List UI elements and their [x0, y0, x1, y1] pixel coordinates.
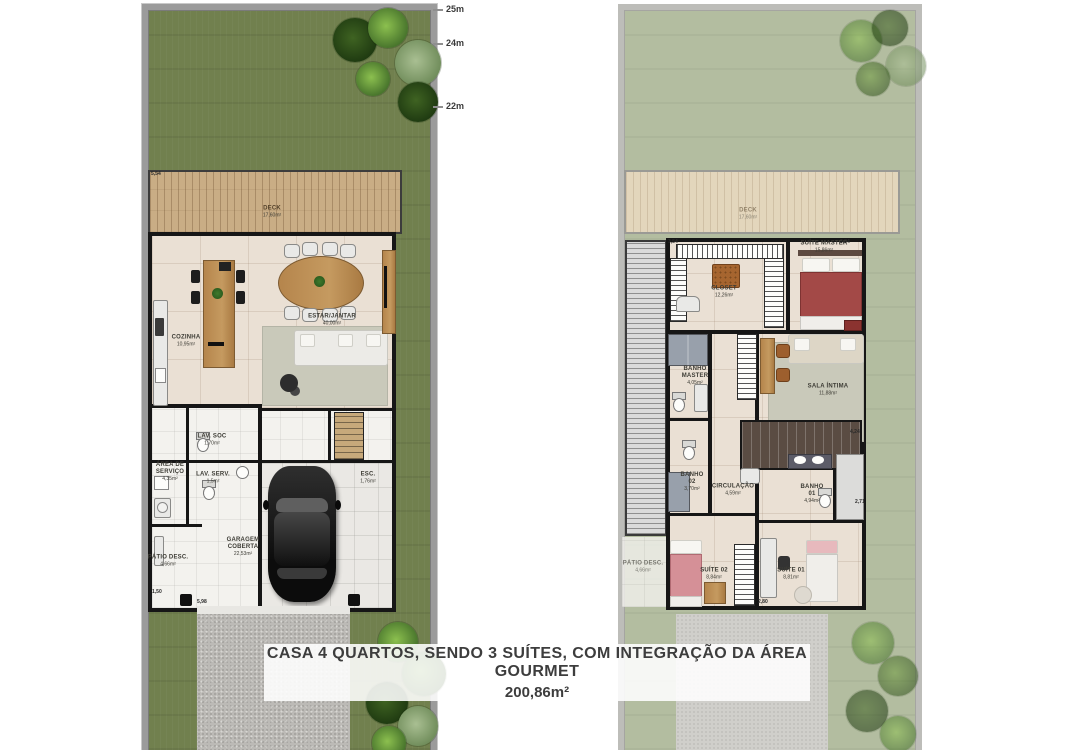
staircase-ground: [334, 412, 364, 460]
room-area: 1,70m²: [198, 441, 227, 447]
room-label-banho01: BANHO 01 4,94m²: [800, 484, 824, 504]
dimension-label: 3,54: [668, 240, 678, 245]
gate-post: [348, 594, 360, 606]
bush-icon: [398, 82, 438, 122]
stool-icon: [236, 270, 245, 283]
closet-rack: [764, 258, 784, 328]
pillow-icon: [832, 258, 860, 272]
room-area: 3,70m²: [680, 486, 704, 492]
caption-box: CASA 4 QUARTOS, SENDO 3 SUÍTES, COM INTE…: [264, 644, 810, 701]
wardrobe-rack: [734, 544, 755, 606]
room-name: ESC.: [360, 471, 376, 478]
interior-wall: [668, 513, 758, 516]
car: [268, 466, 336, 602]
room-label-estar-jantar: ESTAR/JANTAR 40,00m²: [308, 313, 356, 326]
sink-icon: [694, 384, 708, 412]
bush-icon: [368, 8, 408, 48]
room-area: 4,05m²: [680, 380, 710, 386]
stair-landing: [740, 468, 760, 484]
desk: [760, 538, 777, 598]
room-area: 4,66m²: [623, 568, 664, 574]
room-area: 1,5m²: [196, 479, 230, 485]
room-area: 10,95m²: [172, 342, 201, 348]
room-name: BANHO 01: [800, 484, 824, 498]
kitchen-island: [203, 260, 235, 368]
room-name: SALA ÍNTIMA: [808, 383, 849, 390]
car-mirror-icon: [263, 500, 269, 510]
bed-suite02: [670, 554, 702, 600]
plant-icon: [314, 276, 325, 287]
room-name: SUÍTE 02: [700, 567, 728, 574]
chair-icon: [776, 368, 790, 382]
toilet-icon: [683, 446, 695, 460]
chair-icon: [776, 344, 790, 358]
ruler-tick: [433, 106, 443, 108]
pillow-icon: [802, 258, 830, 272]
room-area: 1,76m²: [360, 479, 376, 485]
bed-master: [800, 272, 862, 318]
stool-icon: [191, 270, 200, 283]
bush-icon: [878, 656, 918, 696]
room-label-banho02: BANHO 02 3,70m²: [680, 472, 704, 492]
room-name: BANHO MASTER: [680, 366, 710, 380]
deck-area: 17,60m²: [263, 213, 281, 219]
room-name: COZINHA: [172, 334, 201, 341]
room-label-lav-soc: LAV. SOC 1,70m²: [198, 433, 227, 446]
ground-deck: [148, 170, 402, 234]
washer-door-icon: [157, 502, 168, 513]
caption-line2: 200,86m²: [264, 684, 810, 701]
room-label-cozinha: COZINHA 10,95m²: [172, 334, 201, 347]
chair-icon: [284, 306, 300, 320]
kitchen-sink: [155, 368, 166, 383]
shower-icon: [668, 334, 708, 366]
dresser: [704, 582, 726, 604]
ruler-mark-24m: 24m: [446, 39, 464, 48]
closet-rack: [670, 258, 687, 322]
pillow-icon: [366, 334, 381, 347]
room-label-patio: PÁTIO DESC. 4,66m²: [148, 554, 189, 567]
stool-icon: [236, 291, 245, 304]
room-area: 4,94m²: [800, 498, 824, 504]
room-area: 12,26m²: [711, 293, 737, 299]
room-label-suite02: SUÍTE 02 8,84m²: [700, 567, 728, 580]
car-windshield: [276, 498, 328, 512]
room-area: 8,84m²: [700, 575, 728, 581]
bush-icon: [872, 10, 908, 46]
chair-icon: [302, 242, 318, 256]
toilet-icon: [673, 398, 685, 412]
chair-icon: [340, 244, 356, 258]
pergola-louver: [625, 240, 667, 536]
car-mirror-icon: [335, 500, 341, 510]
chair-icon: [322, 242, 338, 256]
wardrobe-rack: [737, 334, 757, 400]
island-appliance: [219, 262, 231, 271]
room-label-suite01: SUÍTE 01 8,81m²: [777, 567, 805, 580]
room-label-circulacao: CIRCULAÇÃO 4,59m²: [712, 483, 754, 496]
room-area: 40,00m²: [308, 321, 356, 327]
bush-icon: [886, 46, 926, 86]
pillow-icon: [840, 338, 856, 351]
room-area: 4,59m²: [712, 491, 754, 497]
bush-icon: [395, 40, 441, 86]
deck-name: DECK: [739, 207, 757, 214]
room-area: 4,66m²: [148, 562, 189, 568]
closet-ottoman: [712, 264, 740, 288]
kitchen-counter: [153, 300, 168, 406]
room-name: PÁTIO DESC.: [623, 560, 664, 567]
side-table: [280, 374, 298, 392]
car-roof: [274, 512, 330, 566]
room-name: LAV. SERV.: [196, 471, 230, 478]
dimension-label: 3,84: [840, 240, 850, 245]
plant-icon: [212, 288, 223, 299]
ruler-tick: [433, 43, 443, 45]
bed-foot-blanket: [670, 596, 702, 607]
room-label-garagem: GARAGEM COBERTA 22,53m²: [222, 537, 264, 557]
dimension-label: 1,50: [152, 590, 162, 595]
interior-wall: [759, 520, 864, 523]
tv-icon: [384, 266, 387, 308]
room-name: CLOSET: [711, 285, 737, 292]
floorplan-image: DECK 17,60m² 5,54: [0, 0, 1071, 750]
room-area: 11,88m²: [808, 391, 849, 397]
pillow-icon: [300, 334, 315, 347]
closet-rack: [676, 244, 784, 259]
room-name: PÁTIO DESC.: [148, 554, 189, 561]
interior-wall: [328, 408, 331, 462]
room-name: LAV. SOC: [198, 433, 227, 440]
room-label-patio-upper: PÁTIO DESC. 4,66m²: [623, 560, 664, 573]
room-area: 22,53m²: [222, 551, 264, 557]
interior-wall: [668, 418, 712, 421]
room-name: ESTAR/JANTAR: [308, 313, 356, 320]
interior-wall: [262, 408, 392, 411]
bush-icon: [856, 62, 890, 96]
shower-icon: [836, 454, 864, 520]
cooktop-icon: [155, 318, 164, 336]
room-name: SUÍTE 01: [777, 567, 805, 574]
interior-wall: [786, 240, 790, 332]
garage-apron: [197, 606, 350, 614]
room-area: 15,86m²: [800, 248, 847, 254]
desk: [760, 338, 775, 394]
stool-icon: [191, 291, 200, 304]
interior-wall: [258, 404, 262, 606]
room-label-banho-master: BANHO MASTER 4,05m²: [680, 366, 710, 386]
toilet-icon: [203, 486, 215, 500]
car-rear-window: [277, 568, 327, 579]
room-label-sala-intima: SALA ÍNTIMA 11,88m²: [808, 383, 849, 396]
interior-wall: [152, 524, 202, 527]
ruler-tick: [433, 9, 443, 11]
closet-vanity: [676, 296, 700, 312]
room-name: CIRCULAÇÃO: [712, 483, 754, 490]
ruler-mark-22m: 22m: [446, 102, 464, 111]
caption-line1: CASA 4 QUARTOS, SENDO 3 SUÍTES, COM INTE…: [264, 645, 810, 681]
room-name: GARAGEM COBERTA: [222, 537, 264, 551]
room-label-closet: CLOSET 12,26m²: [711, 285, 737, 298]
pillow-icon: [794, 338, 810, 351]
sink-icon: [794, 456, 806, 464]
deck-name: DECK: [263, 205, 281, 212]
upper-deck-ghost: [624, 170, 900, 234]
interior-wall: [262, 460, 392, 463]
ruler-mark-25m: 25m: [446, 5, 464, 14]
sink-icon: [812, 456, 824, 464]
dimension-label: 2,80: [758, 600, 768, 605]
chair-icon: [284, 244, 300, 258]
master-tv-console: [844, 320, 862, 331]
room-label-esc: ESC. 1,76m²: [360, 471, 376, 484]
dimension-label: 5,54: [151, 172, 161, 177]
room-area: 4,35m²: [153, 476, 187, 482]
gate-post: [180, 594, 192, 606]
island-handle: [208, 342, 224, 346]
dimension-label: 5,98: [197, 600, 207, 605]
room-label-lav-serv: LAV. SERV. 1,5m²: [196, 471, 230, 484]
deck-area: 17,60m²: [739, 215, 757, 221]
bush-icon: [880, 716, 916, 750]
room-name: ÁREA DE SERVIÇO: [153, 462, 187, 476]
bush-icon: [356, 62, 390, 96]
sink-icon: [236, 466, 249, 479]
dimension-label: 4,24: [850, 430, 860, 435]
pillow-icon: [806, 540, 838, 554]
pillow-icon: [670, 540, 702, 554]
deck-label: DECK 17,60m²: [263, 205, 281, 218]
dimension-label: 2,71: [855, 500, 865, 505]
room-name: BANHO 02: [680, 472, 704, 486]
room-area: 8,81m²: [777, 575, 805, 581]
room-label-area-servico: ÁREA DE SERVIÇO 4,35m²: [153, 462, 187, 482]
pillow-icon: [338, 334, 353, 347]
round-rug: [794, 586, 812, 604]
deck-label: DECK 17,60m²: [739, 207, 757, 220]
